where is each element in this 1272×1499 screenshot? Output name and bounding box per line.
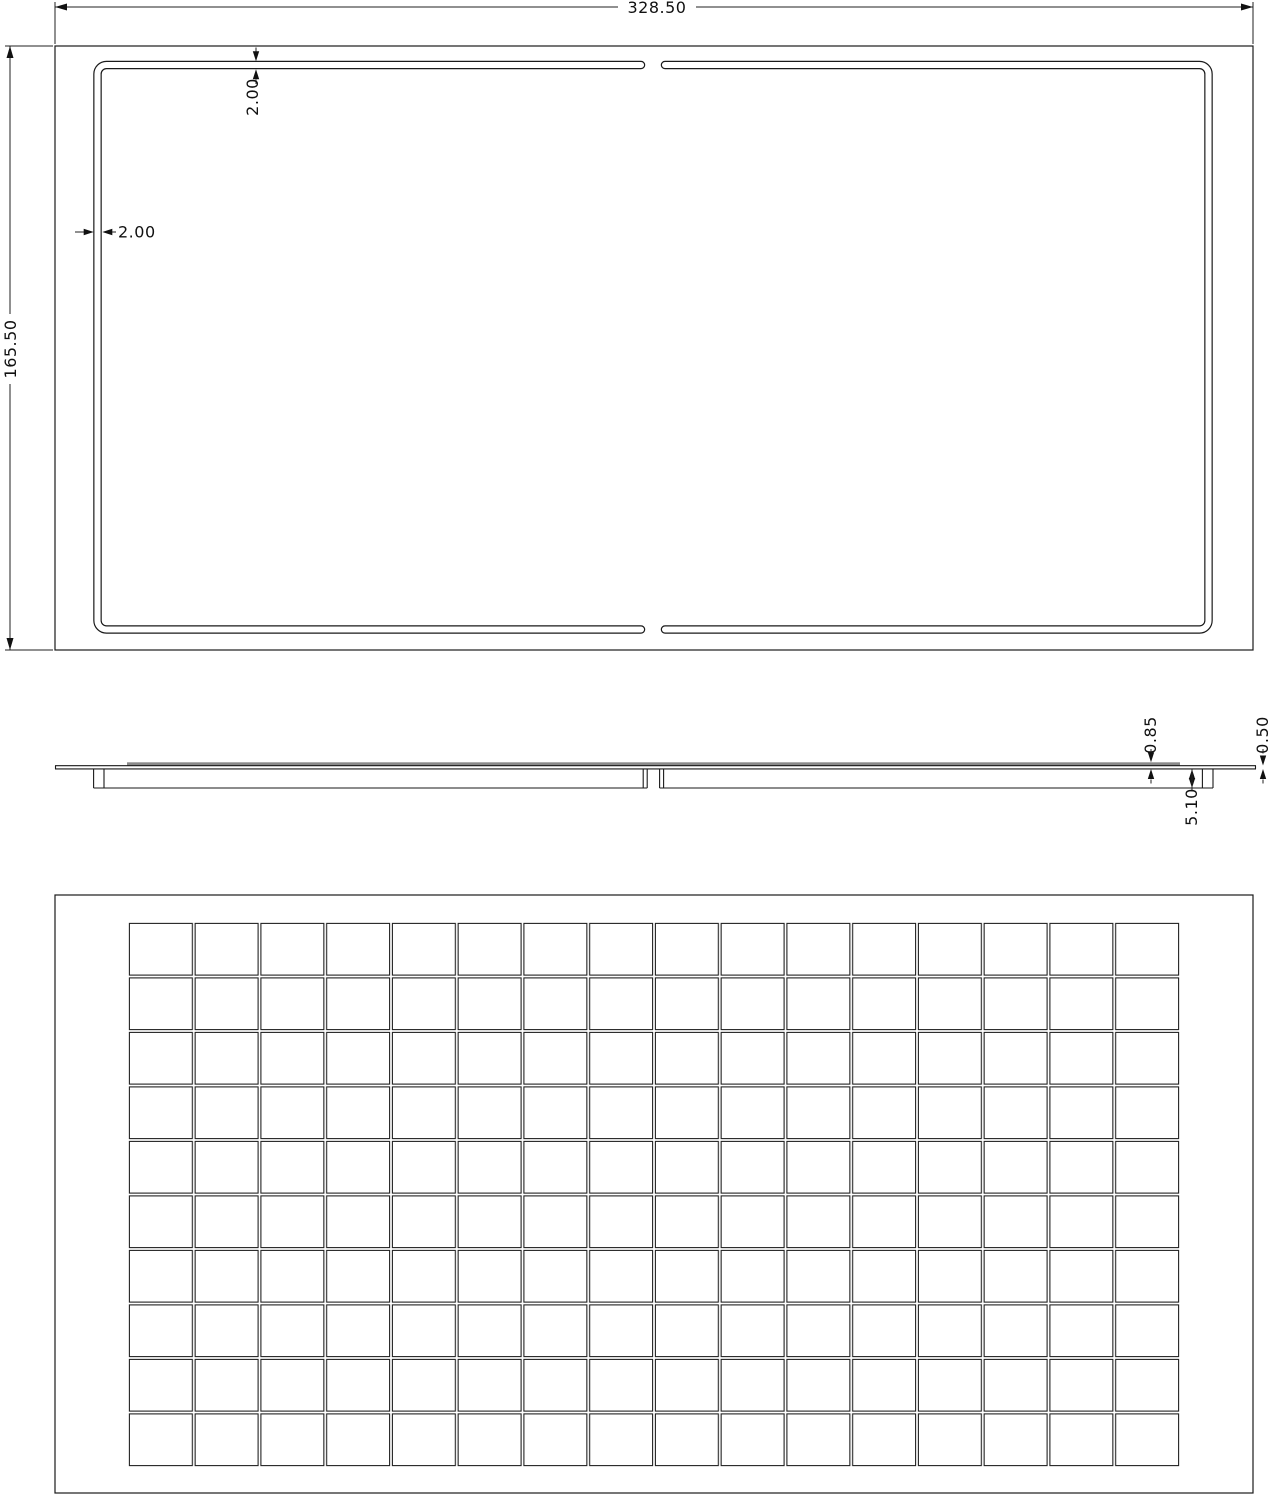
arrowhead [1148,769,1154,779]
frame-thickness-top-label: 2.00 [243,78,262,116]
dim-frame-thickness-side: 2.00 [75,223,156,242]
bottom-view [55,895,1253,1493]
arrowhead [253,51,259,61]
cell-grid [128,922,1180,1467]
arrowhead [1260,756,1266,766]
frame-lip-left [94,769,648,788]
laminate-thickness-label: 0.85 [1141,716,1160,754]
overall-width-label: 328.50 [628,0,687,17]
arrowhead [84,229,94,235]
frame-groove-right [665,65,1209,630]
frame-groove-left [98,65,642,630]
dim-frame-thickness-top: 2.00 [243,48,262,116]
frame-thickness-side-label: 2.00 [118,223,156,242]
frame-lip-right [660,769,1213,788]
dim-overall-height: 165.50 [1,46,53,650]
arrowhead [102,229,112,235]
arrowhead [1148,752,1154,762]
arrowhead [1260,769,1266,779]
technical-drawing: 328.50 165.50 2.00 2.00 [0,0,1272,1499]
overall-height-label: 165.50 [1,320,20,379]
dim-laminate-thickness: 0.85 [1141,716,1160,783]
top-view: 328.50 165.50 2.00 2.00 [1,0,1253,650]
frame-depth-label: 5.10 [1182,788,1201,826]
dim-overall-width: 328.50 [55,0,1253,44]
arrowhead [7,46,14,58]
back-sheet [55,766,1256,769]
drawing-sheet: 328.50 165.50 2.00 2.00 [0,0,1272,1499]
dim-sheet-thickness: 0.50 [1253,716,1272,783]
arrowhead [7,638,14,650]
panel-outline [55,46,1253,650]
dim-frame-depth: 5.10 [1182,769,1201,826]
arrowhead [1241,4,1253,11]
arrowhead [253,69,259,79]
side-view: 0.85 0.50 5.10 [55,716,1272,826]
sheet-thickness-label: 0.50 [1253,716,1272,754]
arrowhead [55,4,67,11]
